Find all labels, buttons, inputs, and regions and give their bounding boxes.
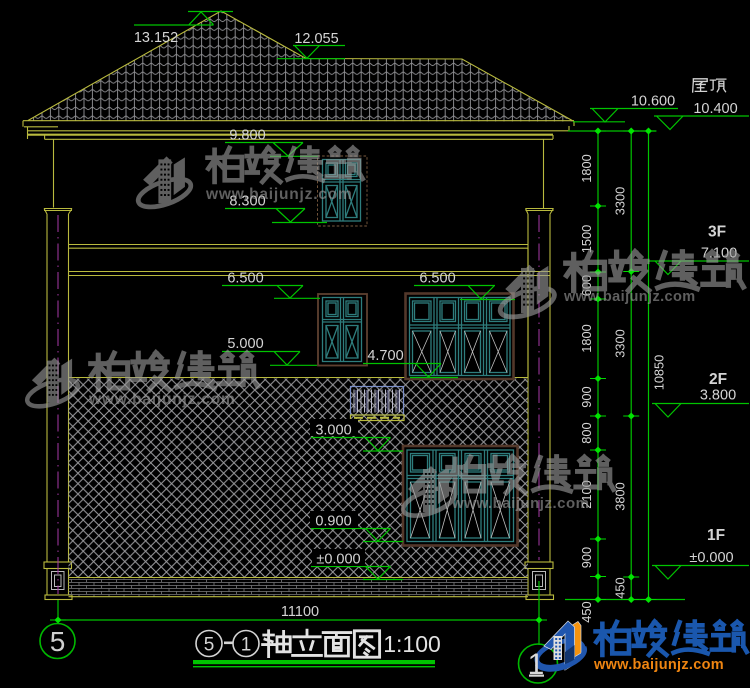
svg-text:6.500: 6.500 — [419, 271, 455, 287]
svg-text:3800: 3800 — [613, 482, 628, 510]
svg-text:1: 1 — [241, 635, 252, 656]
svg-text:0.900: 0.900 — [315, 514, 351, 530]
svg-text:450: 450 — [613, 577, 628, 598]
svg-text:www.baijunjz.com: www.baijunjz.com — [88, 391, 236, 408]
svg-text:6.500: 6.500 — [227, 271, 263, 287]
svg-text:10.400: 10.400 — [693, 101, 737, 117]
svg-text:3.800: 3.800 — [700, 388, 736, 404]
svg-text:2F: 2F — [709, 371, 727, 388]
svg-text:www.baijunjz.com: www.baijunjz.com — [563, 289, 696, 305]
svg-text:1500: 1500 — [579, 225, 594, 253]
svg-text:10850: 10850 — [652, 355, 667, 391]
svg-text:www.baijunjz.com: www.baijunjz.com — [205, 186, 353, 203]
svg-text:3.000: 3.000 — [315, 423, 351, 439]
svg-text:±0.000: ±0.000 — [316, 552, 360, 568]
svg-text:12.055: 12.055 — [294, 31, 338, 47]
svg-text:1800: 1800 — [579, 324, 594, 352]
svg-text:www.baijunjz.com: www.baijunjz.com — [451, 495, 589, 512]
svg-text:11100: 11100 — [281, 604, 319, 620]
svg-text:13.152: 13.152 — [134, 30, 178, 46]
svg-text:800: 800 — [579, 422, 594, 443]
svg-text:4.700: 4.700 — [367, 348, 403, 364]
svg-text:10.600: 10.600 — [631, 94, 675, 110]
svg-text:±0.000: ±0.000 — [689, 550, 733, 566]
svg-text:www.baijunjz.com: www.baijunjz.com — [593, 657, 724, 673]
svg-text:3F: 3F — [708, 224, 726, 241]
svg-text:1F: 1F — [707, 527, 725, 544]
svg-text:900: 900 — [579, 386, 594, 407]
svg-text:3300: 3300 — [613, 187, 628, 215]
svg-text:9.800: 9.800 — [229, 128, 265, 144]
svg-text:3300: 3300 — [613, 329, 628, 357]
svg-text:900: 900 — [579, 547, 594, 568]
svg-text:1800: 1800 — [579, 154, 594, 182]
svg-text:1:100: 1:100 — [383, 631, 441, 657]
svg-text:5: 5 — [204, 635, 215, 656]
svg-text:5.000: 5.000 — [227, 336, 263, 352]
svg-text:5: 5 — [50, 626, 66, 657]
svg-text:450: 450 — [579, 601, 594, 622]
